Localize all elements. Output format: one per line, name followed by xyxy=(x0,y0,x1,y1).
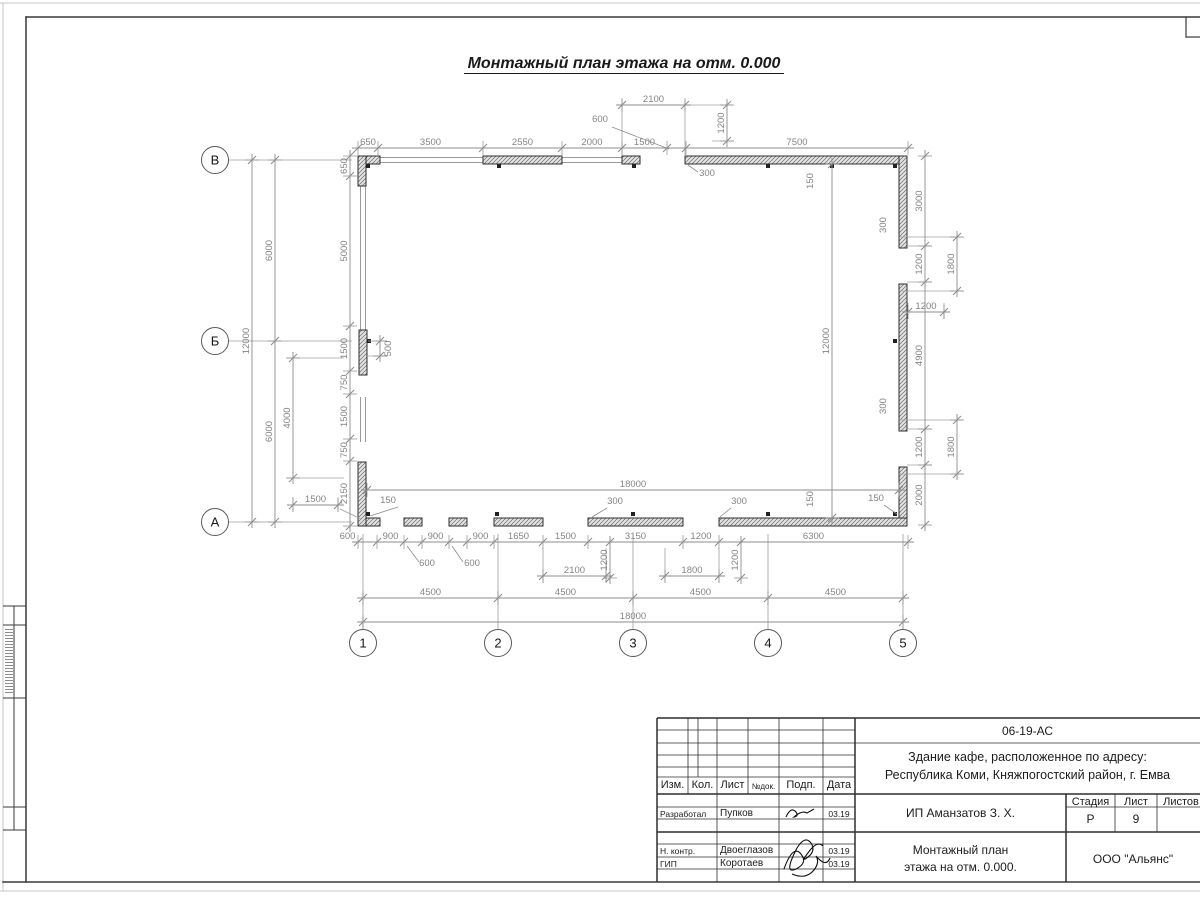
col-kol: Кол. xyxy=(688,779,717,791)
leader: 600 xyxy=(592,114,669,149)
stage-label: Стадия xyxy=(1066,796,1115,808)
dimension-chain: 1800 xyxy=(946,231,964,297)
dim-label: 6300 xyxy=(803,531,824,542)
dim-label: 4500 xyxy=(555,587,576,598)
dimension-chain: 60090090090016501500315012006300 xyxy=(340,531,914,549)
role-control: Н. контр. xyxy=(660,846,695,856)
dim-label: 600 xyxy=(592,114,608,125)
dim-label: 750 xyxy=(339,442,350,458)
dim-label: 150 xyxy=(805,173,816,189)
drawing-sheet: 12345ВБА 6503500255020001500750021001200… xyxy=(0,0,1200,900)
dim-label: 1200 xyxy=(914,253,925,274)
dimension-chain: 1200 xyxy=(730,536,748,584)
dimension-chain: 6505000150075015007502150 xyxy=(339,150,357,532)
dim-label: 1200 xyxy=(599,549,610,570)
dim-label: 6000 xyxy=(264,240,275,261)
dim-label: 1200 xyxy=(690,531,711,542)
date-gip: 03.19 xyxy=(823,859,855,869)
dimension-chain: 1200 xyxy=(902,301,950,319)
dim-label: 5000 xyxy=(339,240,350,261)
col-ndok: №док. xyxy=(748,782,779,791)
dim-label: 2100 xyxy=(643,94,664,105)
dim-label: 1200 xyxy=(915,301,936,312)
dim-label: 2000 xyxy=(914,484,925,505)
dim-label: 12000 xyxy=(821,328,832,354)
dimension-chain: 1200 xyxy=(599,536,617,584)
leader: 150 xyxy=(370,495,398,516)
dim-label: 1800 xyxy=(946,253,957,274)
embed-markers xyxy=(366,164,897,516)
col-izm: Изм. xyxy=(657,779,688,791)
dim-label: 3150 xyxy=(625,531,646,542)
dim-label: 150 xyxy=(805,491,816,507)
dimension-chain: 1800 xyxy=(946,414,964,480)
dim-label: 6000 xyxy=(264,421,275,442)
dim-label: 600 xyxy=(340,531,356,542)
leader: 300 xyxy=(592,496,623,517)
axis-label: В xyxy=(211,153,220,168)
col-podp: Подп. xyxy=(779,779,823,791)
dim-label: 2000 xyxy=(581,137,602,148)
dim-label: 650 xyxy=(339,158,350,174)
dimension-chain: 65035002550200015007500 xyxy=(352,137,914,155)
sheets-label: Листов xyxy=(1157,796,1200,808)
sheet-number: 9 xyxy=(1115,812,1157,826)
col-list: Лист xyxy=(717,779,748,791)
drawing-name-line2: этажа на отм. 0.000. xyxy=(855,860,1066,874)
leader: 150 xyxy=(805,491,816,507)
dim-label: 300 xyxy=(607,496,623,507)
dim-label: 650 xyxy=(360,137,376,148)
dimension-chain: 12000 xyxy=(821,158,839,524)
date-developer: 03.19 xyxy=(823,809,855,819)
dim-label: 4500 xyxy=(690,587,711,598)
axis-label: 1 xyxy=(359,636,366,651)
dim-label: 900 xyxy=(428,531,444,542)
dim-label: 1200 xyxy=(914,436,925,457)
leader: 600 xyxy=(407,546,435,569)
axis-label: Б xyxy=(211,334,220,349)
company-name: ООО "Альянс" xyxy=(1066,852,1200,866)
dim-label: 300 xyxy=(731,496,747,507)
leader: 150 xyxy=(868,493,897,514)
dimension-chain: 1800 xyxy=(659,565,725,583)
dim-label: 2100 xyxy=(564,565,585,576)
drawing-canvas: 12345ВБА 6503500255020001500750021001200… xyxy=(0,0,1200,900)
dim-label: 600 xyxy=(464,558,480,569)
leader: 600 xyxy=(452,546,480,569)
dim-label: 300 xyxy=(878,217,889,233)
dimension-chain: 1200 xyxy=(716,99,734,147)
drawing-title: Монтажный план этажа на отм. 0.000 xyxy=(414,55,834,73)
signature-developer xyxy=(786,809,814,817)
side-stamp-text xyxy=(5,629,13,693)
leader: 150 xyxy=(805,173,816,189)
dim-label: 4500 xyxy=(420,587,441,598)
object-address-line2: Республика Коми, Княжпогостский район, г… xyxy=(855,768,1200,782)
dimension-chain: 4000 xyxy=(282,352,300,484)
dim-label: 2550 xyxy=(512,137,533,148)
dim-label: 1500 xyxy=(555,531,576,542)
dim-label: 1500 xyxy=(305,494,326,505)
stage-value: Р xyxy=(1066,812,1115,826)
dim-label: 900 xyxy=(383,531,399,542)
dim-label: 300 xyxy=(699,168,715,179)
doc-code: 06-19-АС xyxy=(855,724,1200,738)
dimension-chain: 18000 xyxy=(361,479,905,497)
leader-layer: 600300150150300300150300300150600600 xyxy=(370,114,897,569)
leader: 300 xyxy=(878,217,889,233)
axis-label: 2 xyxy=(494,636,501,651)
dim-label: 150 xyxy=(380,495,396,506)
dim-label: 900 xyxy=(473,531,489,542)
dim-label: 18000 xyxy=(620,479,646,490)
client-name: ИП Аманзатов З. Х. xyxy=(855,806,1066,820)
dim-label: 1200 xyxy=(716,112,727,133)
dim-label: 2150 xyxy=(339,483,350,504)
role-gip: ГИП xyxy=(660,859,677,869)
dim-label: 750 xyxy=(339,375,350,391)
axis-label: 3 xyxy=(629,636,636,651)
dim-label: 7500 xyxy=(786,137,807,148)
col-data: Дата xyxy=(823,779,855,791)
dim-label: 4500 xyxy=(825,587,846,598)
leader: 300 xyxy=(720,496,747,517)
sheet-label: Лист xyxy=(1115,796,1157,808)
dim-label: 3500 xyxy=(420,137,441,148)
axis-label: 4 xyxy=(764,636,771,651)
dim-label: 1800 xyxy=(681,565,702,576)
dim-label: 500 xyxy=(383,341,394,357)
axis-layer: 12345ВБА xyxy=(202,147,917,657)
name-gip: Коротаев xyxy=(720,858,763,869)
dim-label: 1800 xyxy=(946,436,957,457)
dim-label: 3000 xyxy=(914,190,925,211)
dim-label: 1650 xyxy=(508,531,529,542)
dim-label: 4900 xyxy=(914,345,925,366)
dim-label: 4000 xyxy=(282,407,293,428)
dimension-chain: 1500 xyxy=(287,494,344,512)
dim-label: 12000 xyxy=(241,328,252,354)
dim-label: 300 xyxy=(878,398,889,414)
leader: 300 xyxy=(878,398,889,414)
dim-label: 1200 xyxy=(730,549,741,570)
dim-label: 18000 xyxy=(620,611,646,622)
dimension-chain: 2100 xyxy=(616,94,691,112)
dimension-chain: 500 xyxy=(373,335,394,362)
dim-label: 1500 xyxy=(339,338,350,359)
drawing-name-line1: Монтажный план xyxy=(855,843,1066,857)
object-address-line1: Здание кафе, расположенное по адресу: xyxy=(855,750,1200,764)
date-control: 03.19 xyxy=(823,846,855,856)
leader: 300 xyxy=(688,165,715,179)
glazing-lines xyxy=(361,158,623,443)
dim-label: 600 xyxy=(419,558,435,569)
role-developer: Разработал xyxy=(660,809,706,819)
axis-label: А xyxy=(211,515,220,530)
name-developer: Пупков xyxy=(720,808,753,819)
axis-label: 5 xyxy=(899,636,906,651)
dim-label: 150 xyxy=(868,493,884,504)
name-control: Двоеглазов xyxy=(720,845,773,856)
dimension-layer: 6503500255020001500750021001200300012004… xyxy=(241,94,964,629)
dim-label: 1500 xyxy=(339,406,350,427)
